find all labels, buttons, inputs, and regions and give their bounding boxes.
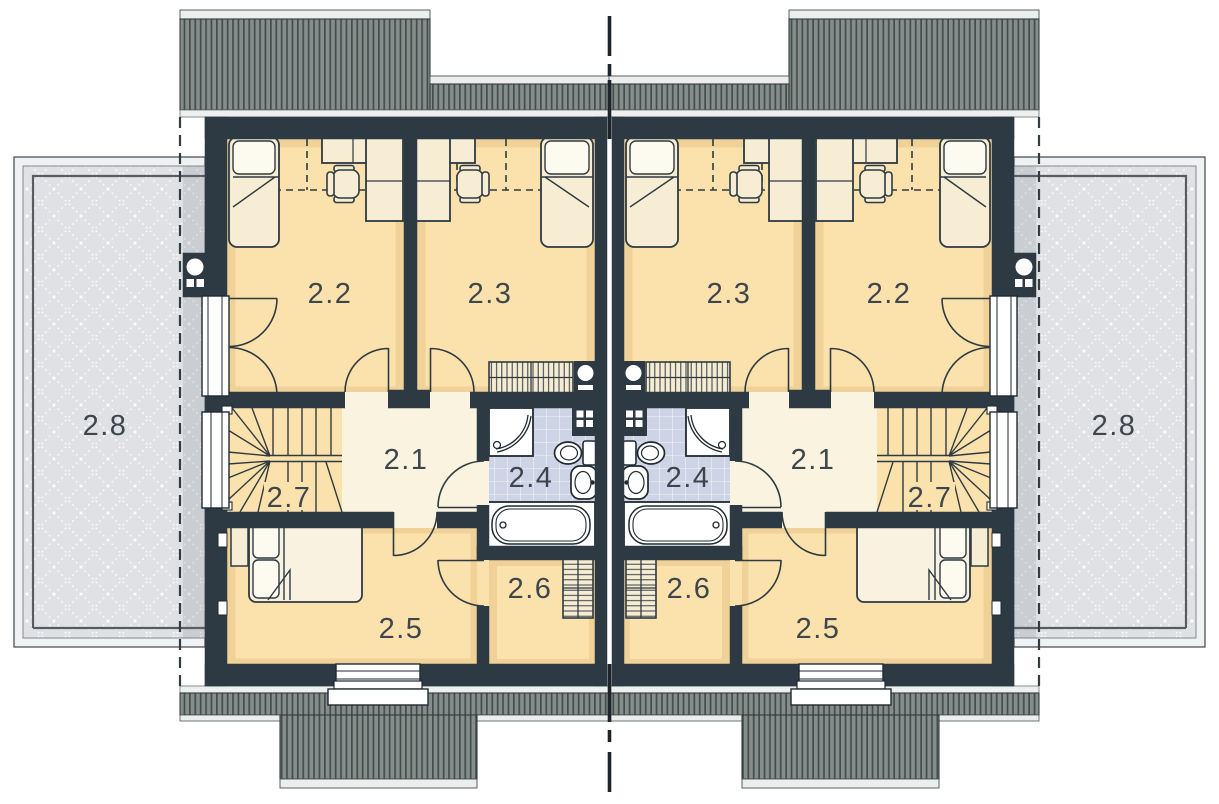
- label-room-2-4: 2.4: [666, 462, 711, 494]
- stair-window: [202, 406, 232, 510]
- roof-top: [180, 10, 610, 117]
- toilet: [555, 441, 597, 465]
- label-room-2-6: 2.6: [667, 573, 712, 605]
- label-room-2-5: 2.5: [796, 613, 841, 645]
- label-room-2-2: 2.2: [308, 278, 353, 310]
- left-unit: [14, 10, 610, 788]
- vent-stack: [572, 406, 597, 436]
- pillow: [253, 560, 279, 598]
- roof-dormer: [280, 715, 477, 779]
- room-2-6-furniture: [563, 558, 593, 618]
- desk-return: [366, 137, 403, 221]
- bathtub: [487, 502, 595, 548]
- label-room-2-5: 2.5: [379, 613, 424, 645]
- wall-niche: [218, 601, 227, 615]
- label-room-2-3: 2.3: [468, 278, 513, 310]
- label-room-2-7: 2.7: [908, 482, 953, 514]
- desk-return: [413, 137, 450, 221]
- label-room-2-1: 2.1: [384, 444, 429, 476]
- washbasin: [571, 466, 597, 499]
- pillow: [233, 141, 275, 174]
- terrace-left: [14, 157, 205, 647]
- right-unit: [609, 10, 1205, 788]
- label-terrace-right: 2.8: [1092, 410, 1137, 442]
- bedroom-2-5-furniture: [231, 516, 362, 602]
- floor-plan-drawing: 2.2 2.3 2.1 2.4 2.7 2.5 2.6 2.8 2.2 2.3 …: [0, 0, 1219, 804]
- label-room-2-3: 2.3: [707, 278, 752, 310]
- label-terrace-left: 2.8: [83, 410, 128, 442]
- wall-top: [205, 117, 607, 139]
- label-room-2-7: 2.7: [267, 482, 312, 514]
- label-room-2-6: 2.6: [508, 573, 553, 605]
- label-room-2-1: 2.1: [791, 444, 836, 476]
- bottom-window: [328, 664, 428, 705]
- label-room-2-2: 2.2: [867, 278, 912, 310]
- partition-2-2-2-3: [404, 139, 417, 392]
- label-room-2-4: 2.4: [509, 462, 554, 494]
- floor-plan-canvas: 2.2 2.3 2.1 2.4 2.7 2.5 2.6 2.8 2.2 2.3 …: [0, 0, 1219, 804]
- wall-niche: [218, 533, 227, 547]
- chimney: [183, 253, 207, 297]
- pillow: [545, 141, 589, 174]
- washing-machine: [574, 361, 597, 395]
- shower-drain: [494, 442, 501, 449]
